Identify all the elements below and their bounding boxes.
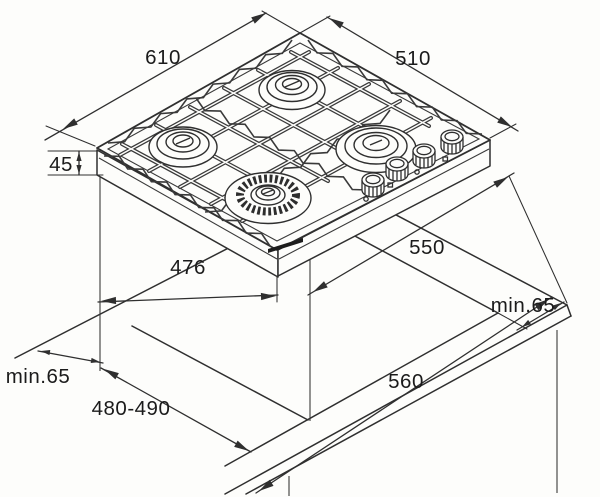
dim-line-476	[98, 295, 278, 302]
ext-510-right	[490, 124, 516, 138]
label-hob-width: 610	[145, 46, 181, 69]
installation-diagram: 610 510 45 476 550 min.65 min.65 480-490…	[0, 0, 600, 497]
cutout-front-edge	[225, 313, 498, 466]
control-knob-1	[362, 173, 384, 197]
label-hob-height: 45	[49, 153, 73, 176]
worktop-front-edge	[225, 305, 567, 494]
control-knob-2	[386, 157, 408, 181]
label-clearance-left: min.65	[6, 365, 71, 388]
control-knob-4	[441, 130, 463, 154]
control-knob-3	[413, 144, 435, 168]
label-cutout-width: 560	[388, 370, 424, 393]
diagram-drawing: 610 510 45 476 550 min.65 min.65 480-490…	[0, 0, 600, 497]
ext-550-right	[509, 176, 567, 303]
label-clearance-right: min.65	[491, 294, 556, 317]
ext-610-top	[262, 11, 300, 33]
burner-left	[149, 127, 217, 167]
burner-rear	[259, 71, 325, 110]
dim-line-560	[256, 297, 552, 493]
burner-front-wok	[225, 173, 311, 224]
label-body-depth: 550	[409, 236, 445, 259]
worktop-corner-edge	[567, 305, 571, 316]
label-cutout-depth: 480-490	[92, 397, 171, 420]
ext-510-top	[300, 16, 330, 33]
ext-610-left	[46, 126, 95, 146]
label-body-width: 476	[170, 256, 206, 279]
label-hob-depth: 510	[395, 47, 431, 70]
